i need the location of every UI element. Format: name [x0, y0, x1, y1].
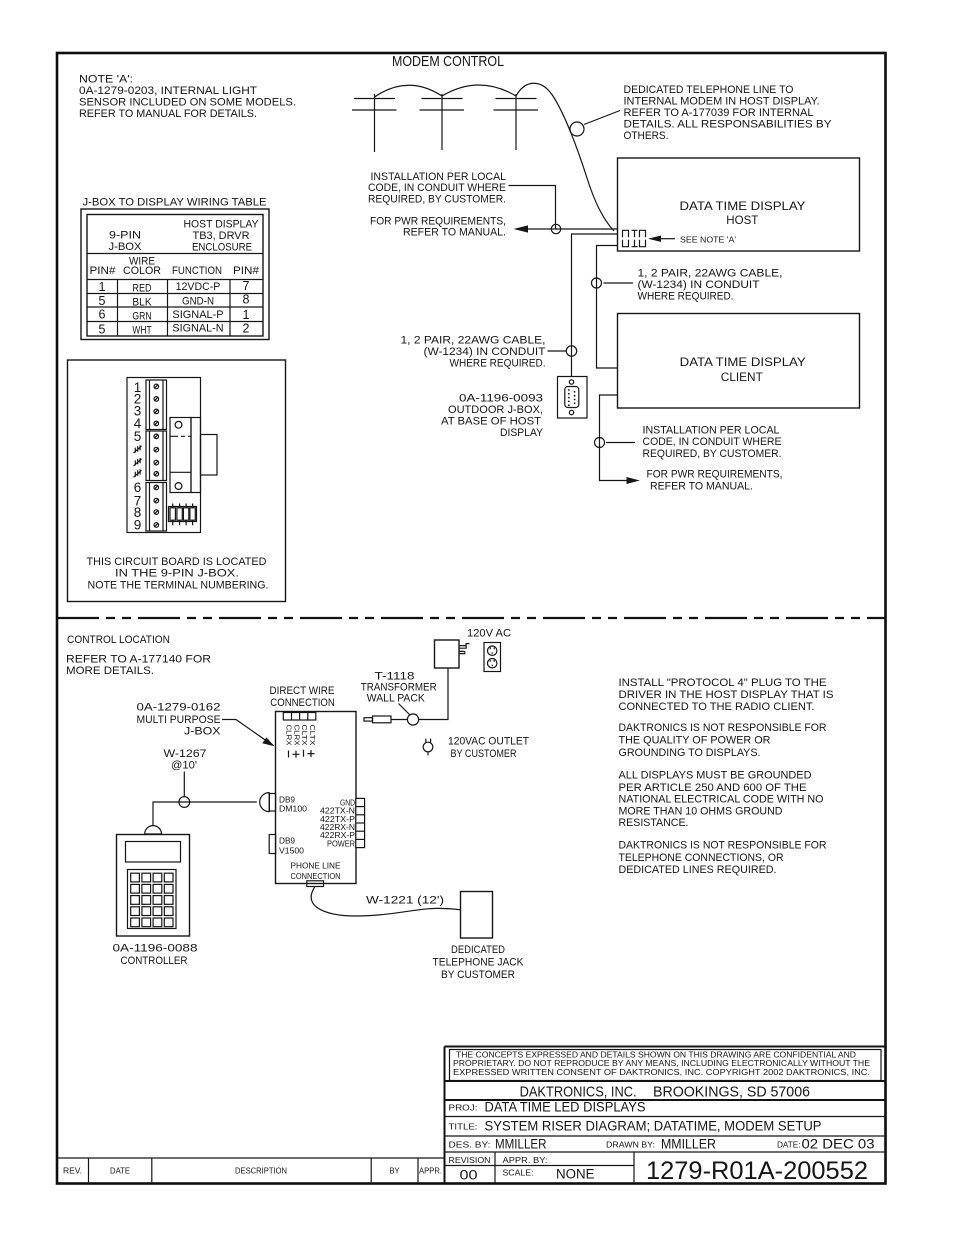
svg-text:9: 9 — [134, 518, 142, 533]
svg-text:THE CONCEPTS EXPRESSED: THE CONCEPTS EXPRESSED AND DETAILS SHOWN… — [456, 1051, 856, 1060]
svg-text:DAKTRONICS IS NOT RESPONSIB: DAKTRONICS IS NOT RESPONSIBLE FOR — [619, 722, 827, 734]
svg-text:INTERNAL MODEM IN HOST DIS: INTERNAL MODEM IN HOST DISPLAY. — [624, 96, 820, 108]
svg-text:0A-1279-0203, INTERNAL LIGHT: 0A-1279-0203, INTERNAL LIGHT — [79, 85, 257, 97]
svg-text:INSTALLATION PER LOCAL: INSTALLATION PER LOCAL — [643, 425, 780, 437]
svg-text:RED: RED — [132, 283, 151, 295]
svg-text:CODE, IN CONDUIT WHERE: CODE, IN CONDUIT WHERE — [368, 182, 506, 194]
svg-text:WHERE REQUIRED.: WHERE REQUIRED. — [450, 358, 546, 370]
svg-text:NONE: NONE — [556, 1166, 595, 1181]
svg-text:HOST DISPLAY: HOST DISPLAY — [184, 218, 260, 230]
svg-text:MODEM CONTROL: MODEM CONTROL — [392, 54, 504, 70]
svg-text:CLTX: CLTX — [308, 725, 317, 746]
svg-text:CLRX: CLRX — [292, 725, 301, 746]
svg-text:PIN#: PIN# — [233, 265, 260, 277]
svg-text:5: 5 — [134, 429, 142, 444]
svg-text:DESCRIPTION: DESCRIPTION — [235, 1167, 287, 1176]
svg-text:12VDC-P: 12VDC-P — [176, 281, 221, 293]
svg-text:SCALE:: SCALE: — [503, 1168, 534, 1177]
svg-text:MORE THAN 10 OHMS GROUND: MORE THAN 10 OHMS GROUND — [619, 805, 783, 817]
svg-text:9-PIN: 9-PIN — [109, 230, 141, 242]
svg-text:DATA TIME DISPLAY: DATA TIME DISPLAY — [680, 355, 806, 369]
svg-text:GROUNDING TO DISPLAYS.: GROUNDING TO DISPLAYS. — [619, 747, 761, 759]
svg-text:BROOKINGS, SD 57006: BROOKINGS, SD 57006 — [653, 1083, 810, 1100]
svg-text:DES. BY:: DES. BY: — [449, 1140, 491, 1149]
svg-text:REVISION: REVISION — [449, 1156, 491, 1165]
svg-text:J-BOX TO DISPLAY WIRING TA: J-BOX TO DISPLAY WIRING TABLE — [83, 197, 267, 209]
svg-text:TITLE:: TITLE: — [449, 1123, 478, 1132]
svg-text:0A-1196-0088: 0A-1196-0088 — [113, 942, 198, 954]
svg-text:REFER TO MANUAL.: REFER TO MANUAL. — [403, 227, 506, 239]
svg-text:NOTE THE TERMINAL NUMBERING: NOTE THE TERMINAL NUMBERING. — [88, 580, 269, 592]
svg-text:CONNECTION: CONNECTION — [270, 697, 335, 709]
svg-text:DATA TIME DISPLAY: DATA TIME DISPLAY — [680, 199, 806, 213]
svg-text:BY CUSTOMER: BY CUSTOMER — [451, 748, 517, 760]
svg-text:THIS CIRCUIT BOARD IS LOCA: THIS CIRCUIT BOARD IS LOCATED — [87, 556, 267, 568]
svg-text:0A-1196-0093: 0A-1196-0093 — [459, 393, 543, 405]
svg-text:PER ARTICLE 250 AND 600 O: PER ARTICLE 250 AND 600 OF THE — [619, 782, 807, 794]
svg-text:AT BASE OF HOST: AT BASE OF HOST — [441, 416, 541, 428]
svg-text:REFER TO MANUAL.: REFER TO MANUAL. — [650, 481, 753, 493]
svg-text:DEDICATED LINES REQUIRED.: DEDICATED LINES REQUIRED. — [619, 864, 777, 876]
svg-text:MULTI PURPOSE: MULTI PURPOSE — [137, 714, 221, 726]
svg-text:1: 1 — [243, 308, 250, 322]
svg-text:W-1267: W-1267 — [164, 748, 207, 760]
svg-text:IN THE 9-PIN J-BOX.: IN THE 9-PIN J-BOX. — [115, 568, 239, 580]
svg-text:OUTDOOR J-BOX,: OUTDOOR J-BOX, — [448, 404, 543, 416]
svg-text:DIRECT WIRE: DIRECT WIRE — [270, 685, 335, 697]
svg-text:(W-1234) IN CONDUIT: (W-1234) IN CONDUIT — [424, 346, 546, 358]
svg-text:BY CUSTOMER: BY CUSTOMER — [441, 969, 515, 981]
svg-text:DATE:: DATE: — [777, 1140, 801, 1149]
svg-text:CONNECTION: CONNECTION — [291, 872, 341, 881]
svg-text:SEE NOTE 'A': SEE NOTE 'A' — [680, 236, 737, 245]
svg-text:@10': @10' — [171, 759, 197, 771]
svg-text:DRAWN BY:: DRAWN BY: — [606, 1140, 655, 1149]
svg-text:DEDICATED: DEDICATED — [451, 944, 505, 956]
svg-text:DB9: DB9 — [279, 796, 296, 805]
svg-text:120V AC: 120V AC — [467, 628, 511, 640]
svg-text:ALL DISPLAYS MUST BE GROUN: ALL DISPLAYS MUST BE GROUNDED — [619, 769, 812, 781]
svg-text:MMILLER: MMILLER — [495, 1137, 547, 1152]
svg-text:MORE DETAILS.: MORE DETAILS. — [66, 665, 154, 677]
svg-text:FOR PWR REQUIREMENTS,: FOR PWR REQUIREMENTS, — [647, 469, 783, 481]
svg-text:POWER: POWER — [327, 839, 355, 848]
svg-text:SIGNAL-P: SIGNAL-P — [172, 309, 223, 321]
svg-text:2: 2 — [243, 322, 250, 336]
svg-text:INSTALL "PROTOCOL 4" PLUG: INSTALL "PROTOCOL 4" PLUG TO THE — [619, 677, 827, 689]
svg-text:GRN: GRN — [132, 311, 151, 323]
svg-text:DATA TIME LED DISPLAYS: DATA TIME LED DISPLAYS — [485, 1100, 646, 1115]
svg-text:EXPRESSED WRITTEN CONSENT O: EXPRESSED WRITTEN CONSENT OF DAKTRONICS,… — [453, 1068, 870, 1077]
svg-text:TB3, DRVR: TB3, DRVR — [193, 230, 250, 242]
svg-text:REFER TO MANUAL FOR DETAIL: REFER TO MANUAL FOR DETAILS. — [79, 108, 257, 120]
svg-text:DISPLAY: DISPLAY — [500, 427, 544, 439]
svg-text:T-1118: T-1118 — [375, 671, 415, 683]
svg-text:BY: BY — [390, 1167, 401, 1176]
svg-text:APPR. BY:: APPR. BY: — [503, 1156, 548, 1165]
svg-text:5: 5 — [99, 294, 106, 308]
svg-text:00: 00 — [460, 1167, 478, 1182]
svg-text:WHERE REQUIRED.: WHERE REQUIRED. — [638, 291, 734, 303]
svg-text:NOTE 'A':: NOTE 'A': — [79, 74, 133, 86]
svg-text:CODE, IN CONDUIT WHERE: CODE, IN CONDUIT WHERE — [643, 436, 782, 448]
svg-text:SYSTEM RISER DIAGRAM; DATAT: SYSTEM RISER DIAGRAM; DATATIME, MODEM SE… — [485, 1119, 822, 1134]
svg-text:PROJ:: PROJ: — [449, 1104, 478, 1113]
svg-text:OTHERS.: OTHERS. — [624, 130, 669, 142]
svg-text:CONTROLLER: CONTROLLER — [121, 955, 188, 967]
svg-text:1: 1 — [99, 280, 106, 294]
svg-text:RESISTANCE.: RESISTANCE. — [619, 817, 689, 829]
svg-text:BLK: BLK — [132, 297, 152, 309]
svg-text:CLRX: CLRX — [285, 725, 294, 746]
svg-text:(W-1234) IN CONDUIT: (W-1234) IN CONDUIT — [638, 279, 760, 291]
svg-text:REFER TO A-177140 FOR: REFER TO A-177140 FOR — [66, 654, 211, 666]
svg-text:02 DEC 03: 02 DEC 03 — [802, 1137, 875, 1152]
svg-text:REQUIRED, BY CUSTOMER.: REQUIRED, BY CUSTOMER. — [643, 448, 782, 460]
svg-text:CONNECTED TO THE RADIO CLI: CONNECTED TO THE RADIO CLIENT. — [619, 701, 815, 713]
svg-text:WALL PACK: WALL PACK — [367, 693, 426, 705]
svg-text:DB9: DB9 — [279, 837, 296, 846]
svg-text:GND-N: GND-N — [182, 296, 214, 308]
svg-text:CLTX: CLTX — [300, 725, 309, 746]
svg-text:120VAC OUTLET: 120VAC OUTLET — [448, 736, 529, 748]
svg-text:8: 8 — [243, 293, 250, 307]
svg-text:W-1221 (12'): W-1221 (12') — [366, 895, 444, 907]
svg-text:PROPRIETARY. DO NOT REPRO: PROPRIETARY. DO NOT REPRODUCE BY ANY MEA… — [453, 1059, 870, 1068]
svg-text:REV.: REV. — [63, 1167, 82, 1176]
svg-text:DEDICATED TELEPHONE LINE TO: DEDICATED TELEPHONE LINE TO — [624, 84, 794, 96]
svg-text:NATIONAL ELECTRICAL CODE WI: NATIONAL ELECTRICAL CODE WITH NO — [619, 793, 824, 805]
svg-text:SENSOR INCLUDED ON SOME MO: SENSOR INCLUDED ON SOME MODELS. — [79, 97, 296, 109]
svg-text:7: 7 — [243, 279, 250, 293]
svg-text:WHT: WHT — [132, 325, 151, 337]
svg-text:PIN#: PIN# — [90, 265, 117, 277]
svg-text:TELEPHONE CONNECTIONS, OR: TELEPHONE CONNECTIONS, OR — [619, 852, 784, 864]
svg-text:DETAILS. ALL RESPONSABILIT: DETAILS. ALL RESPONSABILITIES BY — [624, 119, 833, 131]
svg-text:DRIVER IN THE HOST DISPLAY: DRIVER IN THE HOST DISPLAY THAT IS — [619, 689, 834, 701]
svg-text:0A-1279-0162: 0A-1279-0162 — [137, 701, 221, 713]
svg-text:DAKTRONICS IS NOT RESPONSIB: DAKTRONICS IS NOT RESPONSIBLE FOR — [619, 839, 827, 851]
svg-text:5: 5 — [99, 323, 106, 337]
svg-text:DM100: DM100 — [279, 804, 308, 813]
svg-text:THE QUALITY OF POWER OR: THE QUALITY OF POWER OR — [619, 734, 771, 746]
svg-text:1279-R01A-200552: 1279-R01A-200552 — [646, 1157, 868, 1185]
svg-text:HOST: HOST — [726, 213, 759, 227]
svg-text:COLOR: COLOR — [123, 265, 161, 277]
svg-text:FUNCTION: FUNCTION — [172, 265, 222, 277]
svg-text:6: 6 — [99, 308, 106, 322]
svg-text:ENCLOSURE: ENCLOSURE — [192, 241, 252, 253]
svg-text:DAKTRONICS, INC.: DAKTRONICS, INC. — [520, 1083, 637, 1100]
svg-text:V1500: V1500 — [279, 846, 305, 855]
svg-text:1, 2 PAIR, 22AWG CABLE,: 1, 2 PAIR, 22AWG CABLE, — [401, 335, 546, 347]
svg-text:PHONE LINE: PHONE LINE — [291, 861, 341, 870]
svg-text:J-BOX: J-BOX — [109, 241, 143, 253]
svg-text:REQUIRED, BY CUSTOMER.: REQUIRED, BY CUSTOMER. — [368, 194, 506, 206]
svg-text:APPR.: APPR. — [419, 1167, 442, 1176]
svg-text:J-BOX: J-BOX — [184, 726, 221, 738]
svg-text:CONTROL LOCATION: CONTROL LOCATION — [67, 634, 170, 646]
svg-text:1, 2 PAIR, 22AWG CABLE,: 1, 2 PAIR, 22AWG CABLE, — [638, 268, 783, 280]
svg-text:CLIENT: CLIENT — [721, 370, 764, 384]
svg-text:DATE: DATE — [110, 1167, 130, 1176]
svg-text:REFER TO A-177039 FOR INTE: REFER TO A-177039 FOR INTERNAL — [624, 107, 814, 119]
svg-text:TELEPHONE JACK: TELEPHONE JACK — [433, 956, 525, 968]
svg-text:MMILLER: MMILLER — [661, 1137, 716, 1152]
svg-text:SIGNAL-N: SIGNAL-N — [172, 323, 223, 335]
